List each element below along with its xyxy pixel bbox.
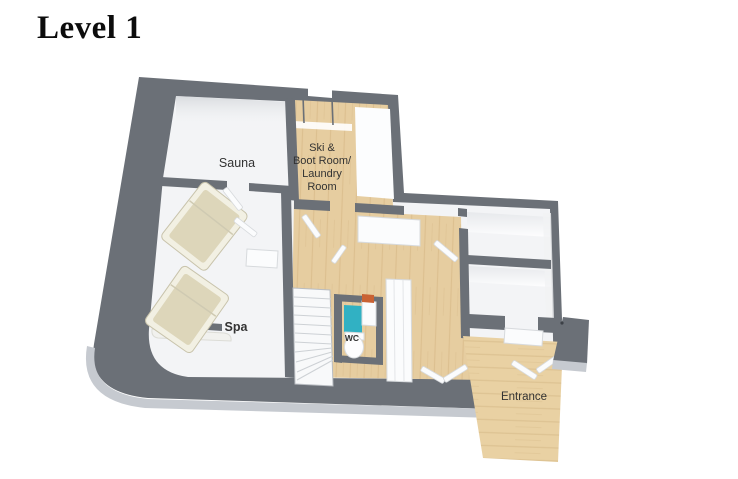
ski-room-south-wall-left [294,199,330,211]
room-label-wc: WC [345,333,359,343]
floor-plan: Sauna Ski & Boot Room/ Laundry Room Spa … [0,0,738,479]
room-label-entrance: Entrance [501,391,547,403]
wc-sink [362,301,376,326]
room-label-spa: Spa [225,320,249,334]
room-b-south-wall-left [469,314,505,330]
svg-text:Laundry: Laundry [302,168,342,180]
shower-tray [344,305,362,333]
hall-sideboard [358,216,420,246]
floor-plan-page: Level 1 [0,0,738,479]
wc-west-wall [334,294,342,363]
room-label-sauna: Sauna [219,156,255,170]
spiral-staircase [293,288,333,386]
east-wing-west-wall-stub [458,208,467,217]
spa-wall-shelf [246,249,278,268]
svg-text:Room: Room [307,181,336,193]
door-hinge-dot [560,321,563,324]
hall-wardrobe [386,279,412,382]
entrance-door [504,328,543,346]
ski-room-east-face [355,107,394,199]
svg-text:Ski &: Ski & [309,142,335,154]
svg-text:Boot Room/: Boot Room/ [293,155,352,167]
wc-shelf-orange [362,294,374,303]
wc-east-wall [376,297,383,364]
